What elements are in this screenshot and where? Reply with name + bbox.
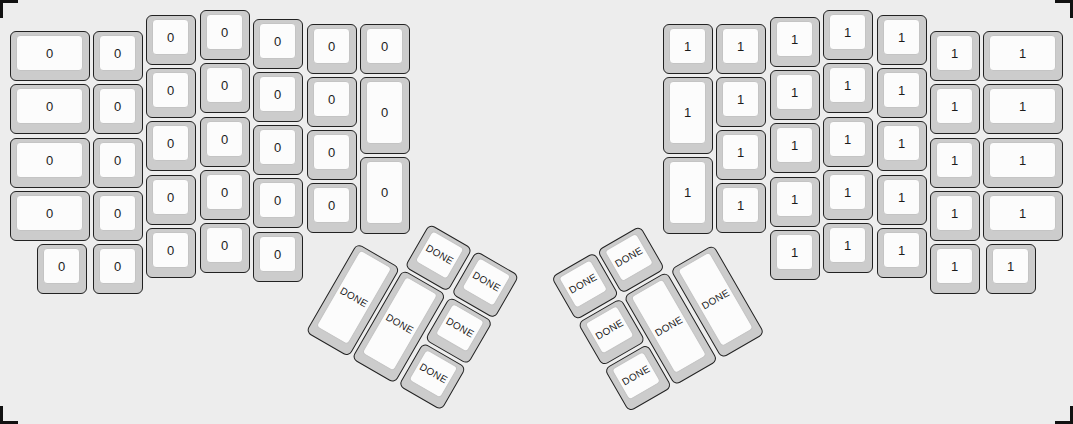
keycap-surface: 0: [206, 227, 243, 263]
keycap-label: 0: [381, 106, 388, 119]
keycap-surface: 0: [152, 125, 189, 161]
keycap-surface: 0: [259, 76, 296, 112]
keycap-surface: 0: [152, 179, 189, 215]
keycap-1[interactable]: 1: [716, 130, 766, 180]
keycap-surface: 1: [883, 179, 920, 215]
keycap-label: 0: [114, 260, 121, 273]
keycap-1[interactable]: 1: [930, 138, 980, 188]
crop-corner-top-right-icon: [1055, 0, 1073, 18]
keycap-0[interactable]: 0: [307, 130, 357, 180]
keycap-label: DONE: [614, 246, 645, 270]
keycap-label: 0: [328, 40, 335, 53]
keycap-surface: 1: [776, 127, 813, 163]
keycap-label: 0: [221, 26, 228, 39]
keycap-label: 1: [791, 86, 798, 99]
keycap-1[interactable]: 1: [770, 17, 820, 67]
keycap-1[interactable]: 1: [823, 223, 873, 273]
keycap-0[interactable]: 0: [307, 24, 357, 74]
keycap-0[interactable]: 0: [93, 191, 143, 241]
keycap-surface: 1: [669, 81, 706, 144]
keycap-surface: 1: [776, 21, 813, 57]
keycap-0[interactable]: 0: [10, 84, 90, 134]
keycap-1[interactable]: 1: [823, 63, 873, 113]
keycap-label: 1: [1019, 47, 1026, 60]
keycap-surface: 1: [776, 181, 813, 217]
keycap-surface: 0: [99, 88, 136, 124]
keycap-surface: 1: [883, 125, 920, 161]
keycap-label: 1: [791, 139, 798, 152]
keycap-surface: 1: [936, 142, 973, 178]
keycap-surface: 1: [989, 35, 1056, 71]
keycap-surface: 1: [829, 67, 866, 103]
keycap-0[interactable]: 0: [146, 15, 196, 65]
keycap-surface: DONE: [611, 351, 661, 401]
keycap-0[interactable]: 0: [146, 121, 196, 171]
keycap-label: 1: [951, 154, 958, 167]
keycap-1[interactable]: 1: [716, 77, 766, 127]
keycap-surface: 0: [366, 81, 403, 144]
keycap-label: DONE: [444, 316, 475, 340]
keycap-1[interactable]: 1: [877, 228, 927, 278]
keycap-1[interactable]: 1: [716, 24, 766, 74]
keycap-surface: DONE: [585, 305, 635, 355]
keycap-surface: 0: [206, 14, 243, 50]
keycap-0[interactable]: 0: [253, 72, 303, 122]
keycap-0[interactable]: 0: [307, 77, 357, 127]
keycap-surface: 0: [259, 129, 296, 165]
keycap-label: 1: [684, 186, 691, 199]
keycap-surface: 1: [936, 248, 973, 284]
keycap-1[interactable]: 1: [877, 121, 927, 171]
keycap-label: 0: [46, 154, 53, 167]
keycap-label: 0: [328, 146, 335, 159]
keycap-label: 0: [58, 260, 65, 273]
keycap-1[interactable]: 1: [930, 191, 980, 241]
keycap-label: 1: [684, 40, 691, 53]
keycap-surface: 1: [776, 234, 813, 270]
keycap-label: 0: [114, 154, 121, 167]
keycap-1[interactable]: 1: [877, 175, 927, 225]
keycap-0[interactable]: 0: [146, 228, 196, 278]
keycap-0[interactable]: 0: [253, 125, 303, 175]
keycap-label: 0: [221, 79, 228, 92]
keycap-1[interactable]: 1: [823, 170, 873, 220]
keycap-label: 0: [274, 35, 281, 48]
keycap-surface: 1: [989, 142, 1056, 178]
keycap-surface: 1: [883, 232, 920, 268]
keycap-label: 0: [328, 199, 335, 212]
keycap-0[interactable]: 0: [37, 244, 87, 294]
keycap-0[interactable]: 0: [93, 31, 143, 81]
keycap-surface: 0: [313, 187, 350, 223]
keycap-label: 0: [328, 93, 335, 106]
keycap-label: 0: [221, 186, 228, 199]
keycap-surface: 1: [722, 134, 759, 170]
keycap-surface: DONE: [461, 257, 511, 307]
keycap-label: 1: [791, 193, 798, 206]
keycap-label: DONE: [700, 287, 731, 311]
keycap-surface: 0: [16, 142, 83, 178]
keycap-label: 1: [737, 93, 744, 106]
keycap-surface: 0: [206, 67, 243, 103]
keycap-0[interactable]: 0: [200, 223, 250, 273]
keycap-0[interactable]: 0: [10, 138, 90, 188]
keycap-surface: 0: [206, 174, 243, 210]
keycap-1[interactable]: 1: [663, 24, 713, 74]
keycap-label: 1: [1019, 154, 1026, 167]
keycap-surface: 0: [366, 161, 403, 224]
keycap-surface: 0: [99, 248, 136, 284]
keycap-label: 0: [114, 207, 121, 220]
keycap-surface: 1: [669, 161, 706, 224]
keycap-label: 0: [221, 239, 228, 252]
keycap-label: 1: [844, 133, 851, 146]
crop-corner-bottom-right-icon: [1055, 406, 1073, 424]
keycap-label: 1: [898, 84, 905, 97]
keycap-1[interactable]: 1: [663, 77, 713, 154]
keycap-1[interactable]: 1: [823, 10, 873, 60]
keycap-0[interactable]: 0: [200, 117, 250, 167]
keycap-surface: 0: [99, 35, 136, 71]
keycap-surface: 1: [776, 74, 813, 110]
keycap-1[interactable]: 1: [716, 183, 766, 233]
keycap-surface: DONE: [558, 259, 608, 309]
keycap-0[interactable]: 0: [93, 244, 143, 294]
keycap-label: 1: [684, 106, 691, 119]
keycap-label: 0: [221, 133, 228, 146]
crop-corner-bottom-left-icon: [0, 406, 18, 424]
keycap-label: 1: [951, 100, 958, 113]
keycap-surface: 1: [829, 174, 866, 210]
keycap-1[interactable]: 1: [930, 31, 980, 81]
keycap-label: 1: [1019, 207, 1026, 220]
keycap-surface: 0: [16, 35, 83, 71]
keycap-label: 1: [791, 246, 798, 259]
keycap-surface: 1: [936, 195, 973, 231]
keycap-1[interactable]: 1: [986, 244, 1036, 294]
keycap-1[interactable]: 1: [663, 157, 713, 234]
keycap-surface: 0: [152, 72, 189, 108]
keycap-surface: 1: [669, 28, 706, 64]
keycap-label: DONE: [338, 285, 369, 309]
keycap-label: 1: [844, 239, 851, 252]
keycap-label: 1: [898, 191, 905, 204]
keycap-surface: 0: [366, 28, 403, 64]
keycap-1[interactable]: 1: [930, 84, 980, 134]
keycap-label: 1: [898, 244, 905, 257]
keycap-surface: 0: [16, 88, 83, 124]
keycap-surface: 0: [152, 232, 189, 268]
keycap-1[interactable]: 1: [770, 70, 820, 120]
keycap-surface: 1: [829, 227, 866, 263]
keycap-label: DONE: [653, 314, 684, 338]
keycap-label: 0: [46, 207, 53, 220]
keycap-surface: 1: [722, 187, 759, 223]
keycap-label: 0: [274, 248, 281, 261]
keycap-label: 0: [381, 186, 388, 199]
keycap-surface: 0: [313, 134, 350, 170]
keycap-label: 1: [737, 199, 744, 212]
keycap-surface: 0: [206, 121, 243, 157]
keycap-label: 0: [167, 244, 174, 257]
keycap-0[interactable]: 0: [360, 157, 410, 234]
keycap-surface: 1: [722, 81, 759, 117]
keycap-1[interactable]: 1: [983, 191, 1063, 241]
keycap-surface: DONE: [604, 233, 654, 283]
keycap-surface: 0: [259, 23, 296, 59]
keyboard-canvas: 0000000000000000000000000000000011111111…: [0, 0, 1073, 424]
keycap-surface: 0: [99, 142, 136, 178]
keycap-surface: DONE: [435, 303, 485, 353]
keycap-label: 1: [951, 47, 958, 60]
keycap-surface: 1: [936, 35, 973, 71]
keycap-surface: 1: [989, 88, 1056, 124]
keycap-surface: 1: [829, 121, 866, 157]
keycap-label: 1: [791, 33, 798, 46]
keycap-1[interactable]: 1: [823, 117, 873, 167]
keycap-label: 1: [951, 207, 958, 220]
keycap-label: 1: [898, 137, 905, 150]
keycap-label: 0: [114, 47, 121, 60]
keycap-surface: 0: [99, 195, 136, 231]
keycap-surface: DONE: [408, 349, 458, 399]
keycap-1[interactable]: 1: [930, 244, 980, 294]
keycap-1[interactable]: 1: [983, 138, 1063, 188]
keycap-label: 1: [951, 260, 958, 273]
keycap-label: DONE: [471, 270, 502, 294]
keycap-0[interactable]: 0: [146, 68, 196, 118]
keycap-label: 0: [381, 40, 388, 53]
keycap-surface: 1: [722, 28, 759, 64]
keycap-label: 1: [1007, 260, 1014, 273]
keycap-surface: 0: [259, 182, 296, 218]
keycap-1[interactable]: 1: [770, 177, 820, 227]
keycap-label: DONE: [418, 362, 449, 386]
keycap-surface: 1: [883, 72, 920, 108]
keycap-1[interactable]: 1: [770, 123, 820, 173]
keycap-surface: DONE: [415, 230, 465, 280]
keycap-1[interactable]: 1: [983, 84, 1063, 134]
keycap-label: DONE: [568, 272, 599, 296]
keycap-label: 0: [167, 31, 174, 44]
keycap-0[interactable]: 0: [93, 84, 143, 134]
keycap-0[interactable]: 0: [360, 24, 410, 74]
keycap-0[interactable]: 0: [200, 10, 250, 60]
keycap-1[interactable]: 1: [770, 230, 820, 280]
keycap-label: 1: [1019, 100, 1026, 113]
keycap-label: 1: [898, 31, 905, 44]
keycap-0[interactable]: 0: [146, 175, 196, 225]
keycap-label: 0: [167, 84, 174, 97]
keycap-surface: 0: [313, 81, 350, 117]
keycap-label: 0: [114, 100, 121, 113]
keycap-label: DONE: [594, 318, 625, 342]
keycap-surface: 0: [313, 28, 350, 64]
keycap-0[interactable]: 0: [307, 183, 357, 233]
keycap-label: 0: [274, 194, 281, 207]
keycap-label: 1: [737, 146, 744, 159]
keycap-surface: 1: [829, 14, 866, 50]
keycap-label: 1: [844, 186, 851, 199]
keycap-surface: 1: [883, 19, 920, 55]
keycap-label: 0: [167, 191, 174, 204]
keycap-label: DONE: [621, 364, 652, 388]
keycap-surface: 0: [16, 195, 83, 231]
keycap-label: 0: [46, 47, 53, 60]
keycap-1[interactable]: 1: [877, 68, 927, 118]
keycap-surface: 1: [992, 248, 1029, 284]
keycap-1[interactable]: 1: [983, 31, 1063, 81]
keycap-surface: 0: [152, 19, 189, 55]
keycap-label: 1: [737, 40, 744, 53]
keycap-surface: 1: [936, 88, 973, 124]
keycap-0[interactable]: 0: [360, 77, 410, 154]
keycap-0[interactable]: 0: [10, 31, 90, 81]
keycap-label: 1: [844, 26, 851, 39]
keycap-0[interactable]: 0: [200, 63, 250, 113]
keycap-label: 0: [46, 100, 53, 113]
keycap-surface: 0: [259, 236, 296, 272]
keycap-0[interactable]: 0: [200, 170, 250, 220]
keycap-0[interactable]: 0: [253, 19, 303, 69]
keycap-0[interactable]: 0: [253, 232, 303, 282]
keycap-label: DONE: [424, 243, 455, 267]
keycap-0[interactable]: 0: [10, 191, 90, 241]
keycap-surface: 0: [43, 248, 80, 284]
keycap-label: DONE: [384, 312, 415, 336]
keycap-label: 0: [167, 137, 174, 150]
keycap-surface: 1: [989, 195, 1056, 231]
keycap-0[interactable]: 0: [93, 138, 143, 188]
keycap-label: 1: [844, 79, 851, 92]
keycap-1[interactable]: 1: [877, 15, 927, 65]
keycap-label: 0: [274, 141, 281, 154]
crop-corner-top-left-icon: [0, 0, 18, 18]
keycap-0[interactable]: 0: [253, 178, 303, 228]
keycap-label: 0: [274, 88, 281, 101]
